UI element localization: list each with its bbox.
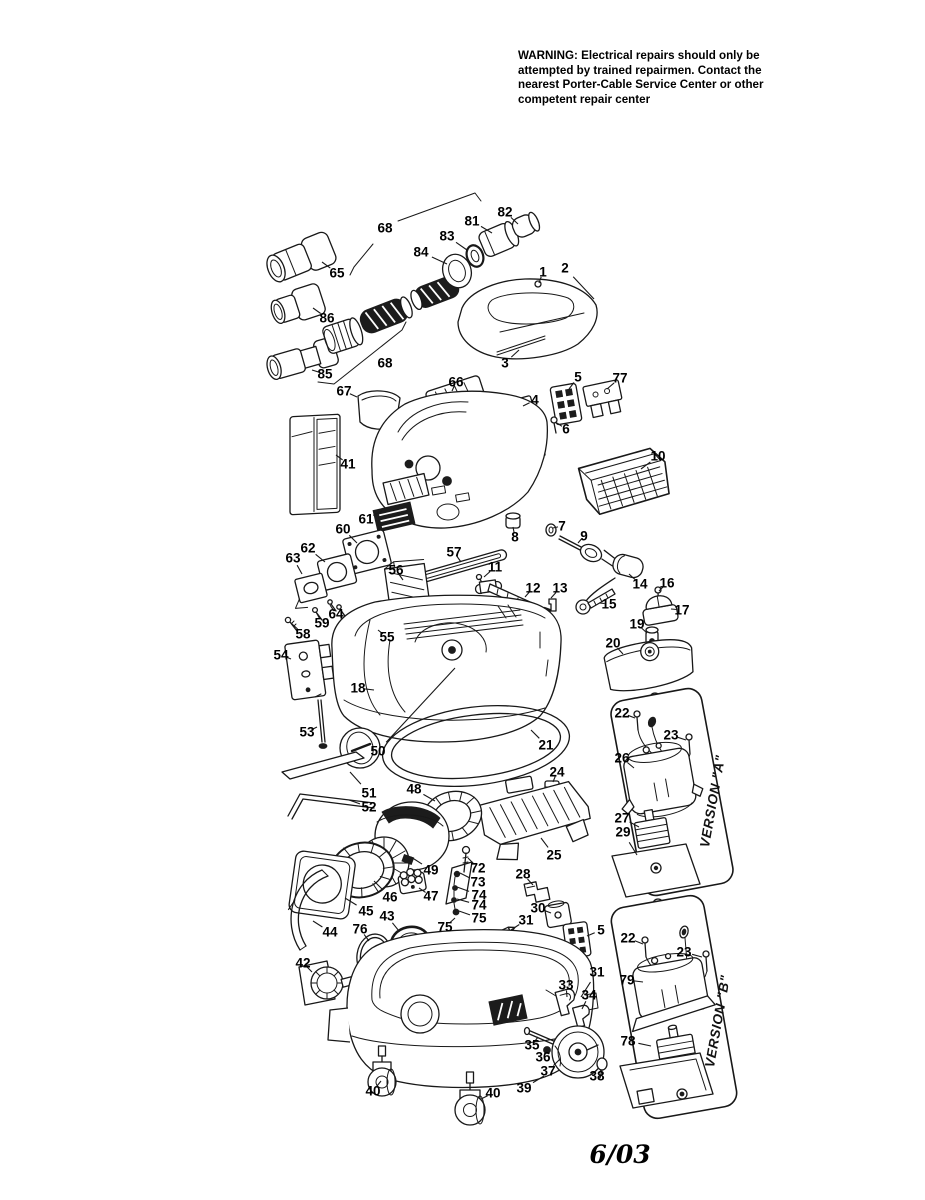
part-label-23: 23: [663, 728, 679, 743]
part-label-22: 22: [620, 931, 635, 946]
part-25-float-cage: [476, 767, 595, 864]
part-label-18: 18: [350, 681, 366, 696]
part-label-17: 17: [674, 603, 689, 618]
part-label-24: 24: [549, 765, 565, 780]
part-label-10: 10: [650, 449, 665, 464]
part-label-13: 13: [552, 581, 568, 596]
part-2-handle-cover: [458, 279, 597, 359]
part-label-63: 63: [285, 551, 301, 566]
part-45-gasket-frame: [288, 850, 356, 920]
part-label-4: 4: [531, 393, 539, 408]
part-label-33: 33: [558, 978, 574, 993]
part-label-59: 59: [314, 616, 329, 631]
leader-line-25: [541, 838, 548, 847]
part-label-77: 77: [612, 371, 627, 386]
part-label-52: 52: [361, 800, 376, 815]
part-label-75: 75: [437, 920, 453, 935]
part-label-14: 14: [632, 577, 648, 592]
part-label-6: 6: [562, 422, 570, 437]
part-39-tank: [328, 930, 598, 1100]
part-label-78: 78: [620, 1034, 636, 1049]
part-label-11: 11: [488, 560, 503, 575]
part-label-23: 23: [676, 945, 692, 960]
part-label-40: 40: [485, 1086, 500, 1101]
part-label-12: 12: [525, 581, 540, 596]
part-label-51: 51: [361, 786, 377, 801]
part-label-44: 44: [322, 925, 338, 940]
part-label-53: 53: [299, 725, 315, 740]
part-label-47: 47: [423, 889, 438, 904]
part-label-26: 26: [614, 751, 630, 766]
part-label-3: 3: [501, 356, 509, 371]
part-label-84: 84: [413, 245, 429, 260]
part-label-60: 60: [335, 522, 350, 537]
part-label-65: 65: [329, 266, 345, 281]
leader-line-63: [297, 565, 302, 574]
part-label-55: 55: [379, 630, 395, 645]
part-61-lid-assembly: [372, 391, 548, 532]
part-label-49: 49: [423, 863, 438, 878]
part-label-56: 56: [388, 563, 404, 578]
part-label-5: 5: [574, 370, 582, 385]
part-53-rod: [315, 694, 327, 749]
part-63-plate: [289, 573, 329, 610]
part-label-67: 67: [336, 384, 351, 399]
leader-line-48: [423, 794, 435, 801]
leader-line-44: [313, 921, 322, 927]
part-label-48: 48: [406, 782, 422, 797]
part-label-22: 22: [614, 706, 629, 721]
leader-line-51: [350, 772, 361, 784]
part-label-36: 36: [535, 1050, 551, 1065]
part-label-39: 39: [516, 1081, 531, 1096]
part-label-20: 20: [605, 636, 620, 651]
part-label-41: 41: [340, 457, 356, 472]
part-label-1: 1: [539, 265, 547, 280]
part-65-nozzle: [262, 230, 338, 287]
part-68-hose-segment-1: [357, 295, 415, 336]
part-72-75-fasteners: [446, 847, 472, 916]
part-label-25: 25: [546, 848, 562, 863]
part-label-61: 61: [358, 512, 374, 527]
part-label-62: 62: [300, 541, 315, 556]
part-label-86: 86: [319, 311, 335, 326]
part-label-81: 81: [464, 214, 480, 229]
part-label-58: 58: [295, 627, 311, 642]
part-label-50: 50: [370, 744, 385, 759]
part-label-15: 15: [601, 597, 617, 612]
part-label-21: 21: [538, 738, 554, 753]
leader-line-75: [459, 911, 470, 915]
part-label-85: 85: [317, 367, 333, 382]
revision-date: 6/03: [560, 1140, 680, 1169]
leader-line-43: [392, 923, 399, 931]
part-label-66: 66: [448, 375, 464, 390]
part-label-38: 38: [589, 1069, 605, 1084]
part-label-31: 31: [518, 913, 534, 928]
parts-diagram-page: WARNING: Electrical repairs should only …: [0, 0, 925, 1200]
part-41-filter-panel: [290, 414, 340, 515]
part-label-7: 7: [558, 519, 566, 534]
part-label-68: 68: [377, 221, 393, 236]
part-label-82: 82: [497, 205, 512, 220]
part-label-29: 29: [615, 825, 630, 840]
part-label-28: 28: [515, 867, 531, 882]
part-label-16: 16: [659, 576, 675, 591]
part-7-washer: [546, 524, 556, 536]
part-label-5: 5: [597, 923, 605, 938]
part-label-68: 68: [377, 356, 393, 371]
part-label-8: 8: [511, 530, 519, 545]
part-label-76: 76: [352, 922, 368, 937]
part-label-19: 19: [629, 617, 644, 632]
part-label-45: 45: [358, 904, 374, 919]
part-label-54: 54: [273, 648, 289, 663]
part-label-9: 9: [580, 529, 588, 544]
part-label-57: 57: [446, 545, 461, 560]
part-label-83: 83: [439, 229, 455, 244]
part-54-bracket: [285, 638, 336, 700]
part-label-43: 43: [379, 909, 395, 924]
part-label-72: 72: [470, 861, 485, 876]
exploded-parts-drawing: VERSION "A" VERSION "B" 6882818384651286…: [0, 0, 925, 1200]
part-6-screw: [551, 417, 557, 433]
part-label-46: 46: [382, 890, 398, 905]
part-label-79: 79: [619, 973, 634, 988]
part-86-adapter: [267, 282, 326, 329]
part-label-2: 2: [561, 261, 569, 276]
part-label-31: 31: [589, 965, 605, 980]
part-label-42: 42: [295, 956, 310, 971]
part-label-40: 40: [365, 1084, 380, 1099]
part-label-64: 64: [328, 607, 344, 622]
part-label-34: 34: [581, 988, 597, 1003]
part-label-75: 75: [471, 911, 487, 926]
leader-line-83: [456, 242, 467, 250]
part-8-bumper: [506, 513, 520, 528]
part-label-27: 27: [614, 811, 629, 826]
